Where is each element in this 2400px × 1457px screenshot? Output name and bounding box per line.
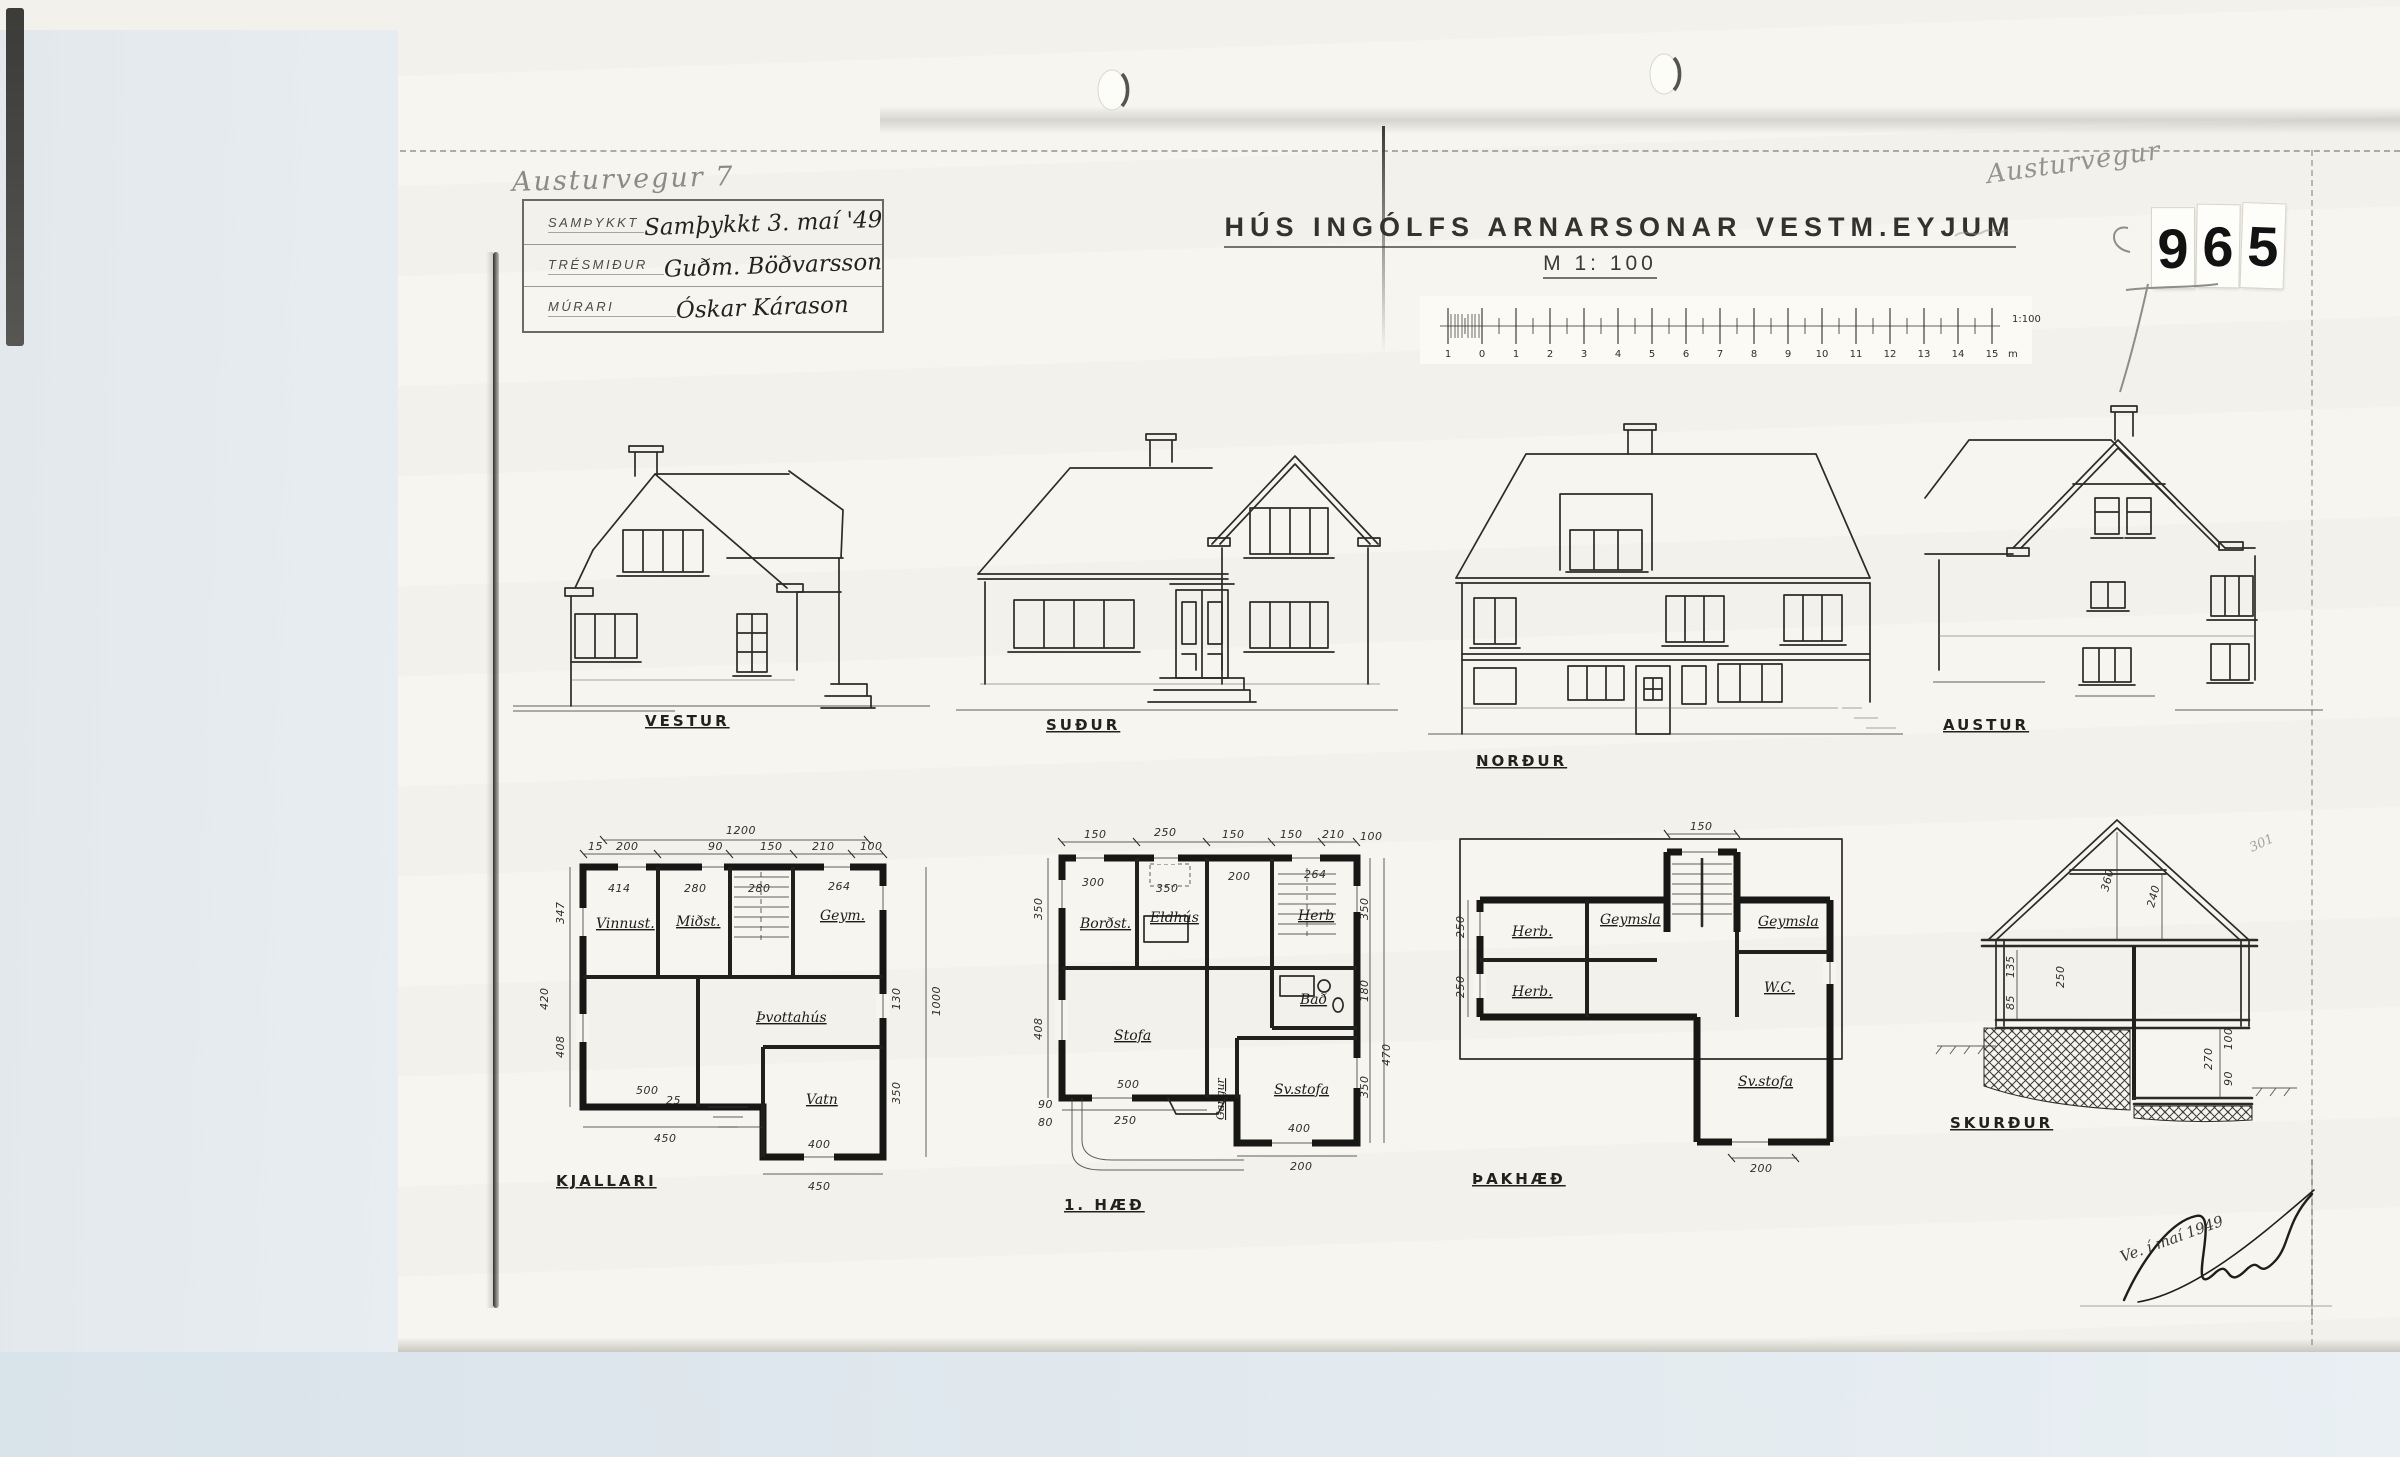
upper-window-center xyxy=(1662,596,1728,646)
room-label: Herb. xyxy=(1511,984,1553,1000)
walls xyxy=(1939,548,2255,680)
dim-label: 250 xyxy=(2054,966,2067,989)
dim-label: 450 xyxy=(808,1180,831,1193)
plan-label: ÞAKHÆÐ xyxy=(1472,1170,1566,1188)
room-label: Geymsla xyxy=(1758,914,1819,930)
scanner-background-bottom xyxy=(0,1352,2400,1457)
pencil-diagonal-mark xyxy=(2120,284,2148,392)
ruler-tick-label: 15 xyxy=(1986,349,1999,360)
dim-label: 280 xyxy=(684,882,707,895)
gable-windows xyxy=(2091,498,2155,538)
room-label: Geymsla xyxy=(1600,912,1661,928)
room-label: Vinnust. xyxy=(596,916,655,932)
dim-label: 350 xyxy=(890,1082,903,1105)
dim-label: 25 xyxy=(666,1094,681,1107)
dim-label: 85 xyxy=(2004,995,2017,1010)
dim-label: 1000 xyxy=(930,986,943,1016)
room-label: Þvottahús xyxy=(755,1010,827,1026)
dim-label: 210 xyxy=(812,840,835,853)
chimney xyxy=(2111,406,2137,440)
ruler-ratio-label: 1:100 xyxy=(2012,314,2041,325)
dim-label: 350 xyxy=(1358,1076,1371,1099)
ruler-tick-label: 14 xyxy=(1952,349,1965,360)
room-label: Miðst. xyxy=(675,914,721,930)
dim-label: 130 xyxy=(890,988,903,1011)
small-window xyxy=(733,614,771,676)
punch-hole xyxy=(1094,66,1130,114)
elevation-label: NORÐUR xyxy=(1476,752,1567,770)
pencil-address: Austurvegur 7 xyxy=(512,161,735,198)
pencil-underline-mark xyxy=(2126,284,2218,290)
dim-label: 408 xyxy=(1032,1018,1045,1041)
dim-label: 200 xyxy=(1290,1160,1313,1173)
dim-label: 150 xyxy=(1084,828,1107,841)
dim-label: 150 xyxy=(1222,828,1245,841)
dim-label: 100 xyxy=(1360,830,1383,843)
room-label: Bað xyxy=(1299,992,1328,1008)
ground-window-4 xyxy=(1718,664,1782,702)
dim-label: 250 xyxy=(1454,976,1467,999)
approval-row-value: Guðm. Böðvarsson xyxy=(664,249,883,283)
plan-kjallari: Vinnust. Miðst. Geym. Þvottahús Vatn 120… xyxy=(508,802,973,1207)
dim-label: 15 xyxy=(588,840,603,853)
approval-row: MÚRARI Óskar Kárason xyxy=(524,288,882,328)
elevation-austur: AUSTUR xyxy=(1925,398,2330,740)
ruler-tick-label: 2 xyxy=(1547,349,1553,360)
room-label: Sv.stofa xyxy=(1274,1082,1329,1098)
room-label: W.C. xyxy=(1764,980,1795,996)
dim-label: 200 xyxy=(616,840,639,853)
approval-row-label: MÚRARI xyxy=(548,299,676,317)
room-label: Herb. xyxy=(1511,924,1553,940)
scanned-drawing-sheet: Austurvegur 7 SAMÞYKKT Samþykkt 3. maí '… xyxy=(0,0,2400,1457)
attic-floor xyxy=(1982,940,2257,946)
dim-label: 90 xyxy=(708,840,723,853)
cornice xyxy=(1456,578,1870,583)
dim-label: 408 xyxy=(554,1036,567,1059)
dim-label: 420 xyxy=(538,988,551,1011)
plan-thakhaed: Herb. Herb. Geymsla Geymsla W.C. Sv.stof… xyxy=(1442,812,1897,1200)
ruler-tick-label: 5 xyxy=(1649,349,1655,360)
upper-window xyxy=(617,530,709,576)
ground-hatch-left xyxy=(1984,1028,2130,1110)
porch-steps xyxy=(821,684,875,708)
ground-window-3 xyxy=(1682,666,1706,704)
room-label: Geym. xyxy=(820,908,865,924)
ruler-tick-label: 1 xyxy=(1513,349,1519,360)
signature-block: Ve. í maí 1949 xyxy=(2080,1160,2340,1335)
ruler-paper xyxy=(1420,296,2032,364)
dormer xyxy=(1560,494,1652,572)
ruler-tick-label: 12 xyxy=(1884,349,1897,360)
entry-steps xyxy=(1148,678,1256,702)
room-label: Vatn xyxy=(806,1092,838,1108)
approval-row-label: SAMÞYKKT xyxy=(548,215,644,233)
section-skurdur: 360 240 250 135 85 270 90 100 301 SKURÐU… xyxy=(1922,788,2307,1156)
dim-label: 264 xyxy=(828,880,851,893)
dim-label: 100 xyxy=(860,840,883,853)
basement-line-and-steps xyxy=(1462,708,1896,728)
dim-label: 250 xyxy=(1114,1114,1137,1127)
main-floor xyxy=(1996,1020,2249,1028)
basement-door xyxy=(1636,666,1670,734)
elevation-sudur: SUÐUR xyxy=(950,412,1405,737)
pencil-hook-mark xyxy=(2114,228,2130,252)
ground-hatch-right xyxy=(2134,1106,2252,1122)
elevation-vestur: VESTUR xyxy=(505,418,935,733)
dim-label: 150 xyxy=(1280,828,1303,841)
fold-shadow xyxy=(486,252,493,1308)
gable-roof xyxy=(1212,456,1378,544)
dim-label: 270 xyxy=(2202,1048,2215,1071)
room-label: Sv.stofa xyxy=(1738,1074,1793,1090)
ground-window-2 xyxy=(1568,666,1624,700)
sheet-title: HÚS INGÓLFS ARNARSONAR VESTM.EYJUM xyxy=(1200,212,2040,243)
ruler-tick-label: 7 xyxy=(1717,349,1723,360)
roof xyxy=(1456,454,1870,578)
right-window xyxy=(1244,602,1334,652)
mid-small-window xyxy=(2087,582,2129,611)
approval-row-value: Óskar Kárason xyxy=(676,292,849,324)
ribbon-window xyxy=(1008,600,1140,652)
pencil-note: 301 xyxy=(2247,832,2276,856)
dim-label: 210 xyxy=(1322,828,1345,841)
elevation-nordur: NORÐUR xyxy=(1418,402,1913,774)
dim-label: 264 xyxy=(1304,868,1327,881)
sheet-bottom-edge xyxy=(398,1338,2400,1352)
eave-brackets xyxy=(1208,538,1380,546)
plan-label: 1. HÆÐ xyxy=(1064,1196,1145,1214)
right-mid-window xyxy=(2207,576,2257,620)
dim-label: 240 xyxy=(2144,884,2162,909)
elevation-label: SUÐUR xyxy=(1046,716,1120,734)
pencil-marks xyxy=(2090,210,2350,410)
dim-label: 250 xyxy=(1454,916,1467,939)
dim-label: 360 xyxy=(2098,868,2116,893)
dim-label: 450 xyxy=(654,1132,677,1145)
dim-label: 400 xyxy=(1288,1122,1311,1135)
approval-row: TRÉSMIÐUR Guðm. Böðvarsson xyxy=(524,246,882,287)
floor-band xyxy=(1462,654,1870,660)
pencil-street-note: Austurvegur xyxy=(1985,136,2163,190)
punch-hole xyxy=(1646,50,1682,98)
dim-label: 500 xyxy=(636,1084,659,1097)
elevation-label: VESTUR xyxy=(645,712,730,730)
scale-ruler: 1 0 1 2 3 4 5 6 7 8 9 10 11 12 13 14 15 … xyxy=(1420,296,2060,366)
dim-ticks xyxy=(1664,830,1799,1162)
dim-label: 414 xyxy=(608,882,631,895)
main-roof xyxy=(978,468,1212,574)
ground-lines xyxy=(1933,682,2323,710)
dim-label: 300 xyxy=(1082,876,1105,889)
ruler-tick-label: 3 xyxy=(1581,349,1587,360)
dim-label: 100 xyxy=(2222,1028,2235,1051)
walls xyxy=(571,558,841,706)
approval-row-label: TRÉSMIÐUR xyxy=(548,257,664,275)
upper-window-right xyxy=(1780,595,1846,645)
dim-label: 350 xyxy=(1032,898,1045,921)
ruler-unit-label: m xyxy=(2008,349,2018,360)
scanner-edge-strip xyxy=(6,8,24,346)
room-label: Stofa xyxy=(1114,1028,1151,1044)
scale-heading: M 1: 100 xyxy=(1480,252,1720,276)
dim-label: 90 xyxy=(2222,1071,2235,1086)
basement-floor xyxy=(2134,1098,2252,1104)
approval-table: SAMÞYKKT Samþykkt 3. maí '49 TRÉSMIÐUR G… xyxy=(522,199,884,333)
room-label: Herb xyxy=(1297,908,1334,924)
roof-section xyxy=(1988,820,2249,940)
dim-label: 90 xyxy=(1038,1098,1053,1111)
ruler-tick-label: 4 xyxy=(1615,349,1621,360)
ruler-tick-label: 10 xyxy=(1816,349,1829,360)
signature-date: Ve. í maí 1949 xyxy=(2118,1212,2226,1266)
entry-door xyxy=(1170,584,1234,678)
elevation-label: AUSTUR xyxy=(1943,716,2029,734)
cornice xyxy=(978,574,1228,579)
section-label: SKURÐUR xyxy=(1950,1114,2053,1132)
ruler-tick-label: 0 xyxy=(1479,349,1485,360)
dim-label: 350 xyxy=(1156,882,1179,895)
room-label: Gangur xyxy=(1214,1077,1227,1120)
approval-row-value: Samþykkt 3. maí '49 xyxy=(643,207,882,241)
walls xyxy=(1996,940,2249,1026)
approval-row: SAMÞYKKT Samþykkt 3. maí '49 xyxy=(524,204,882,245)
chimney xyxy=(1624,424,1656,454)
plan-haed1: Borðst. Eldhús Herb Bað Stofa Sv.stofa G… xyxy=(972,798,1407,1228)
gable-window xyxy=(1244,508,1334,558)
dim-label: 200 xyxy=(1228,870,1251,883)
lower-left-window xyxy=(571,614,641,662)
dim-label: 200 xyxy=(1750,1162,1773,1175)
lower-center-window xyxy=(2079,648,2135,685)
dim-label: 150 xyxy=(1690,820,1713,833)
ruler-tick-label: 9 xyxy=(1785,349,1791,360)
roof-outline xyxy=(1460,839,1842,1059)
dim-label: 1200 xyxy=(726,824,756,837)
dim-label: 470 xyxy=(1380,1044,1393,1067)
chimney xyxy=(1146,434,1176,466)
dim-label: 135 xyxy=(2004,956,2017,979)
ruler-tick-label: 11 xyxy=(1850,349,1863,360)
ruler-tick-label: 8 xyxy=(1751,349,1757,360)
dim-label: 150 xyxy=(760,840,783,853)
dim-label: 280 xyxy=(748,882,771,895)
room-label: Eldhús xyxy=(1149,910,1199,926)
fold-line xyxy=(493,252,499,1308)
dim-label: 347 xyxy=(554,902,567,925)
plan-label: KJALLARI xyxy=(556,1172,657,1190)
scanner-background-left xyxy=(0,30,398,1457)
ruler-tick-label: 13 xyxy=(1918,349,1931,360)
chimney xyxy=(629,446,663,476)
ruler-tick-label: 1 xyxy=(1445,349,1451,360)
dim-label: 80 xyxy=(1038,1116,1053,1129)
ground-window-left xyxy=(1474,668,1516,704)
dim-label: 180 xyxy=(1358,980,1371,1003)
room-label: Borðst. xyxy=(1079,916,1131,932)
dim-label: 350 xyxy=(1358,898,1371,921)
lower-right-window xyxy=(2207,644,2253,683)
ruler-tick-label: 6 xyxy=(1683,349,1689,360)
dim-label: 400 xyxy=(808,1138,831,1151)
eave-brackets xyxy=(565,550,803,596)
dim-label: 250 xyxy=(1154,826,1177,839)
dim-label: 500 xyxy=(1117,1078,1140,1091)
upper-window-left xyxy=(1470,598,1520,648)
